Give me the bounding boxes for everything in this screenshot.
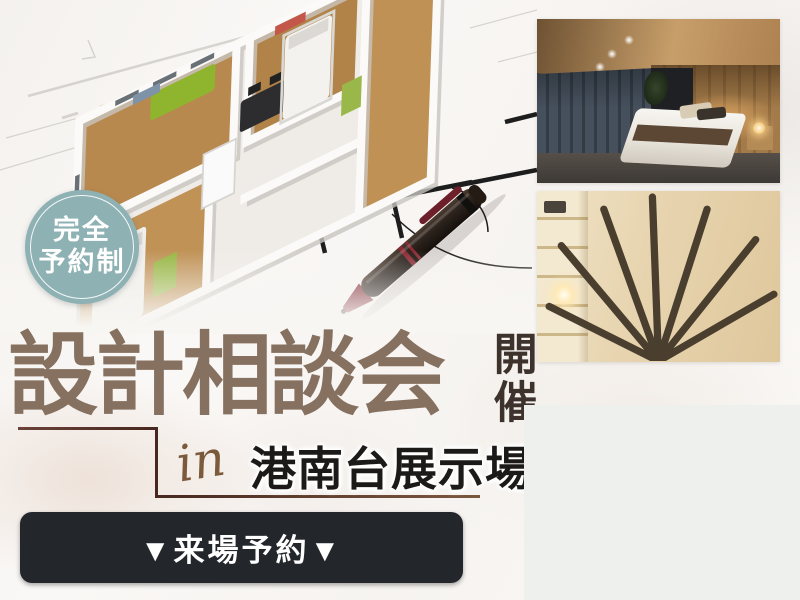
bedroom-photo [537,19,780,183]
accent-line-top [18,427,157,430]
entryway-photo [537,191,780,362]
in-script-text: in [163,431,253,495]
location-name: 港南台展示場 [250,433,532,499]
ceiling-light [595,62,605,72]
svg-text:in: in [172,431,229,494]
main-title: 設計相談会 [8,326,488,426]
accent-line-vertical [155,427,158,498]
promo-banner: 完全 予約制 設計相談会 開催 in 港南台展示場 ▼来場予約▼ [0,0,800,600]
ceiling-light [607,49,617,59]
visit-reservation-label: ▼来場予約▼ [140,525,343,570]
badge-line-2: 予約制 [39,247,126,279]
visit-reservation-button[interactable]: ▼来場予約▼ [20,512,463,583]
reservation-only-badge: 完全 予約制 [25,190,139,304]
spiky-plant [537,191,780,361]
house-exterior-photo [524,405,800,600]
badge-line-1: 完全 [53,215,111,247]
